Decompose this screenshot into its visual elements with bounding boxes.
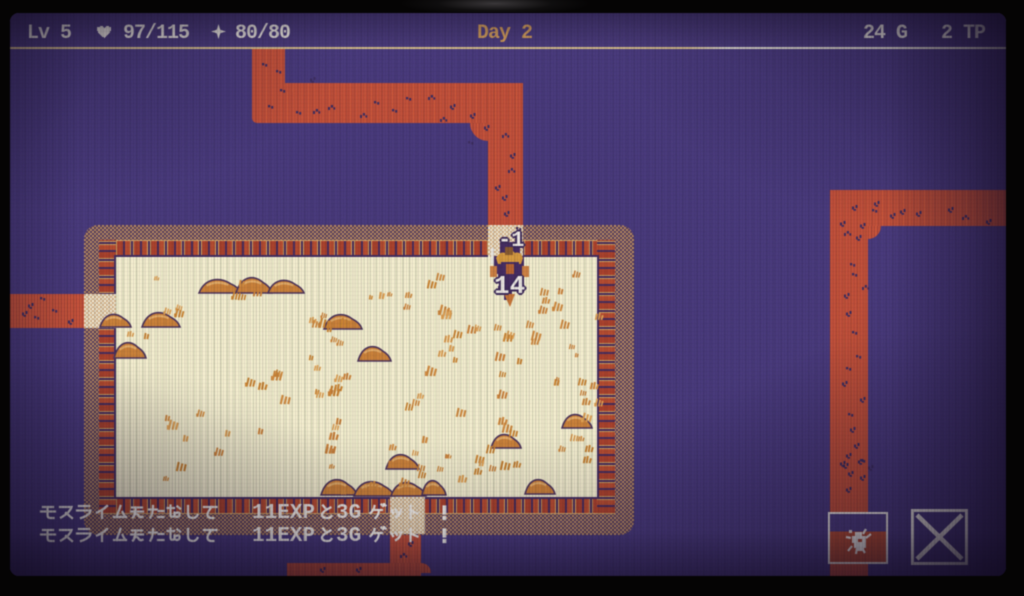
svg-text:11EXP: 11EXP [252,526,315,544]
svg-text:3G: 3G [336,503,361,521]
svg-text:11EXP: 11EXP [252,503,315,521]
svg-text:3G: 3G [336,526,361,544]
